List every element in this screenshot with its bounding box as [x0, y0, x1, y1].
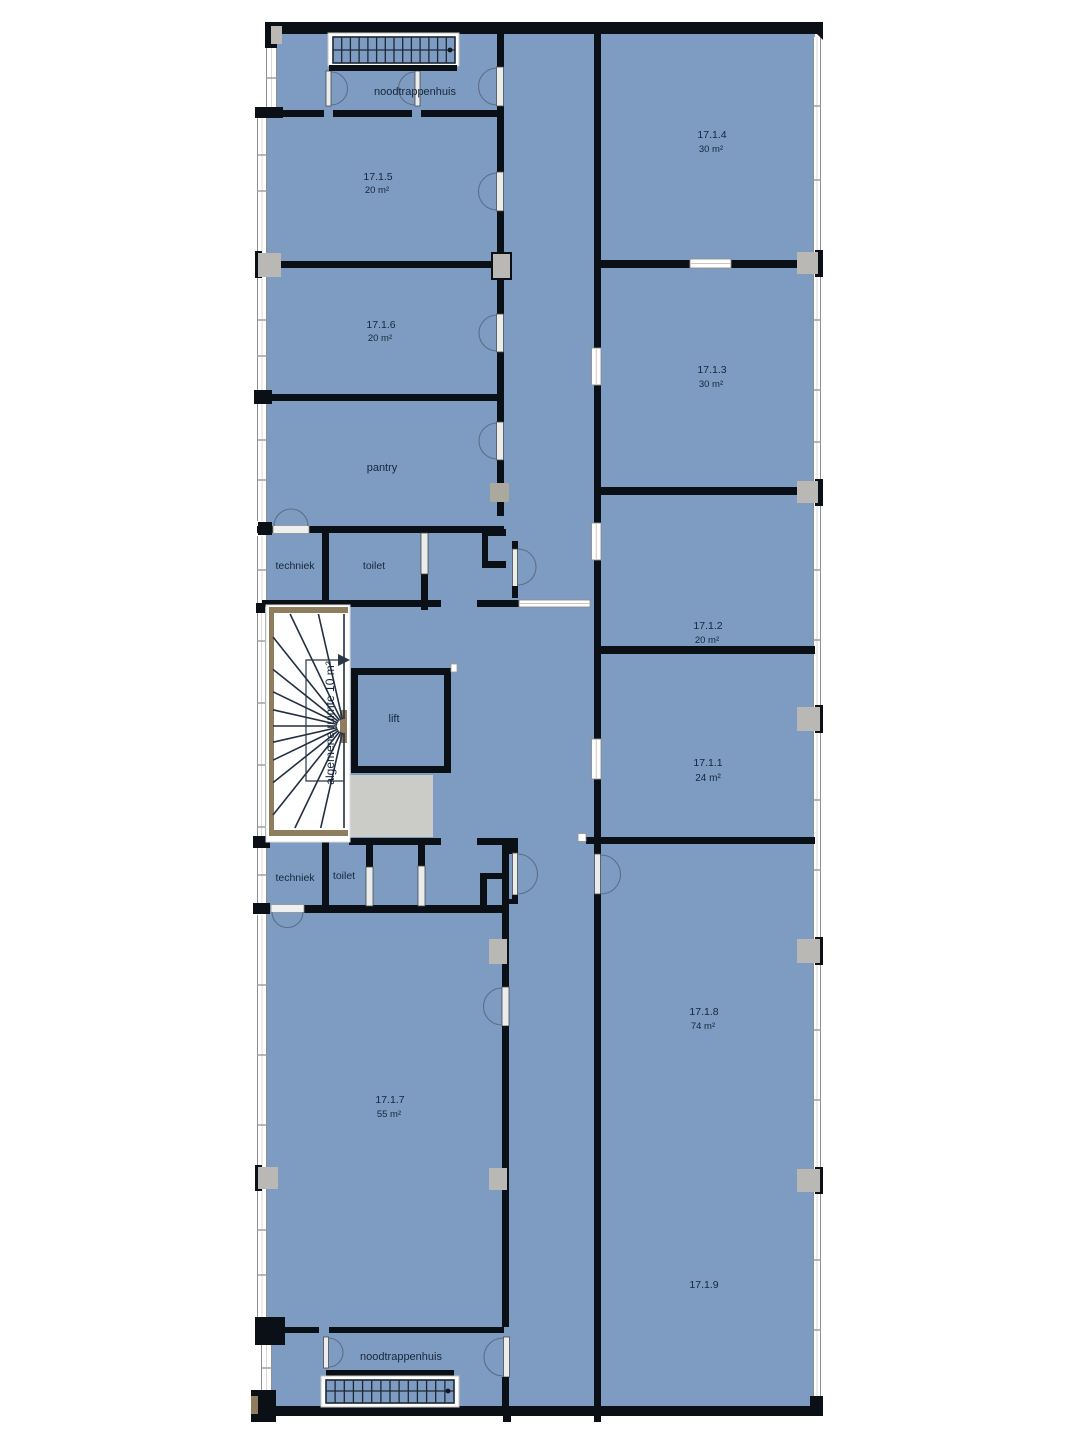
- svg-text:20 m²: 20 m²: [365, 185, 389, 196]
- svg-text:lift: lift: [389, 713, 400, 725]
- svg-text:noodtrappenhuis: noodtrappenhuis: [360, 1351, 442, 1363]
- svg-text:20 m²: 20 m²: [368, 333, 392, 344]
- svg-text:pantry: pantry: [367, 462, 398, 474]
- svg-text:30 m²: 30 m²: [699, 144, 723, 155]
- svg-text:20 m²: 20 m²: [695, 635, 719, 646]
- svg-text:24 m²: 24 m²: [695, 773, 721, 784]
- svg-text:techniek: techniek: [275, 872, 315, 884]
- svg-text:17.1.6: 17.1.6: [366, 319, 395, 331]
- svg-text:17.1.2: 17.1.2: [693, 620, 722, 632]
- svg-text:toilet: toilet: [333, 870, 355, 882]
- svg-text:74 m²: 74 m²: [691, 1021, 715, 1032]
- svg-text:30 m²: 30 m²: [699, 379, 723, 390]
- svg-text:55 m²: 55 m²: [377, 1109, 401, 1120]
- svg-text:toilet: toilet: [363, 560, 385, 572]
- svg-text:17.1.5: 17.1.5: [363, 171, 392, 183]
- svg-text:17.1.4: 17.1.4: [697, 129, 726, 141]
- svg-text:techniek: techniek: [275, 560, 315, 572]
- svg-text:17.1.8: 17.1.8: [689, 1006, 718, 1018]
- svg-text:algemene ruimte 10 m²: algemene ruimte 10 m²: [323, 661, 337, 784]
- svg-text:17.1.9: 17.1.9: [689, 1279, 718, 1291]
- svg-text:17.1.1: 17.1.1: [693, 757, 722, 769]
- svg-text:noodtrappenhuis: noodtrappenhuis: [374, 86, 456, 98]
- svg-text:17.1.7: 17.1.7: [375, 1094, 404, 1106]
- svg-text:17.1.3: 17.1.3: [697, 364, 726, 376]
